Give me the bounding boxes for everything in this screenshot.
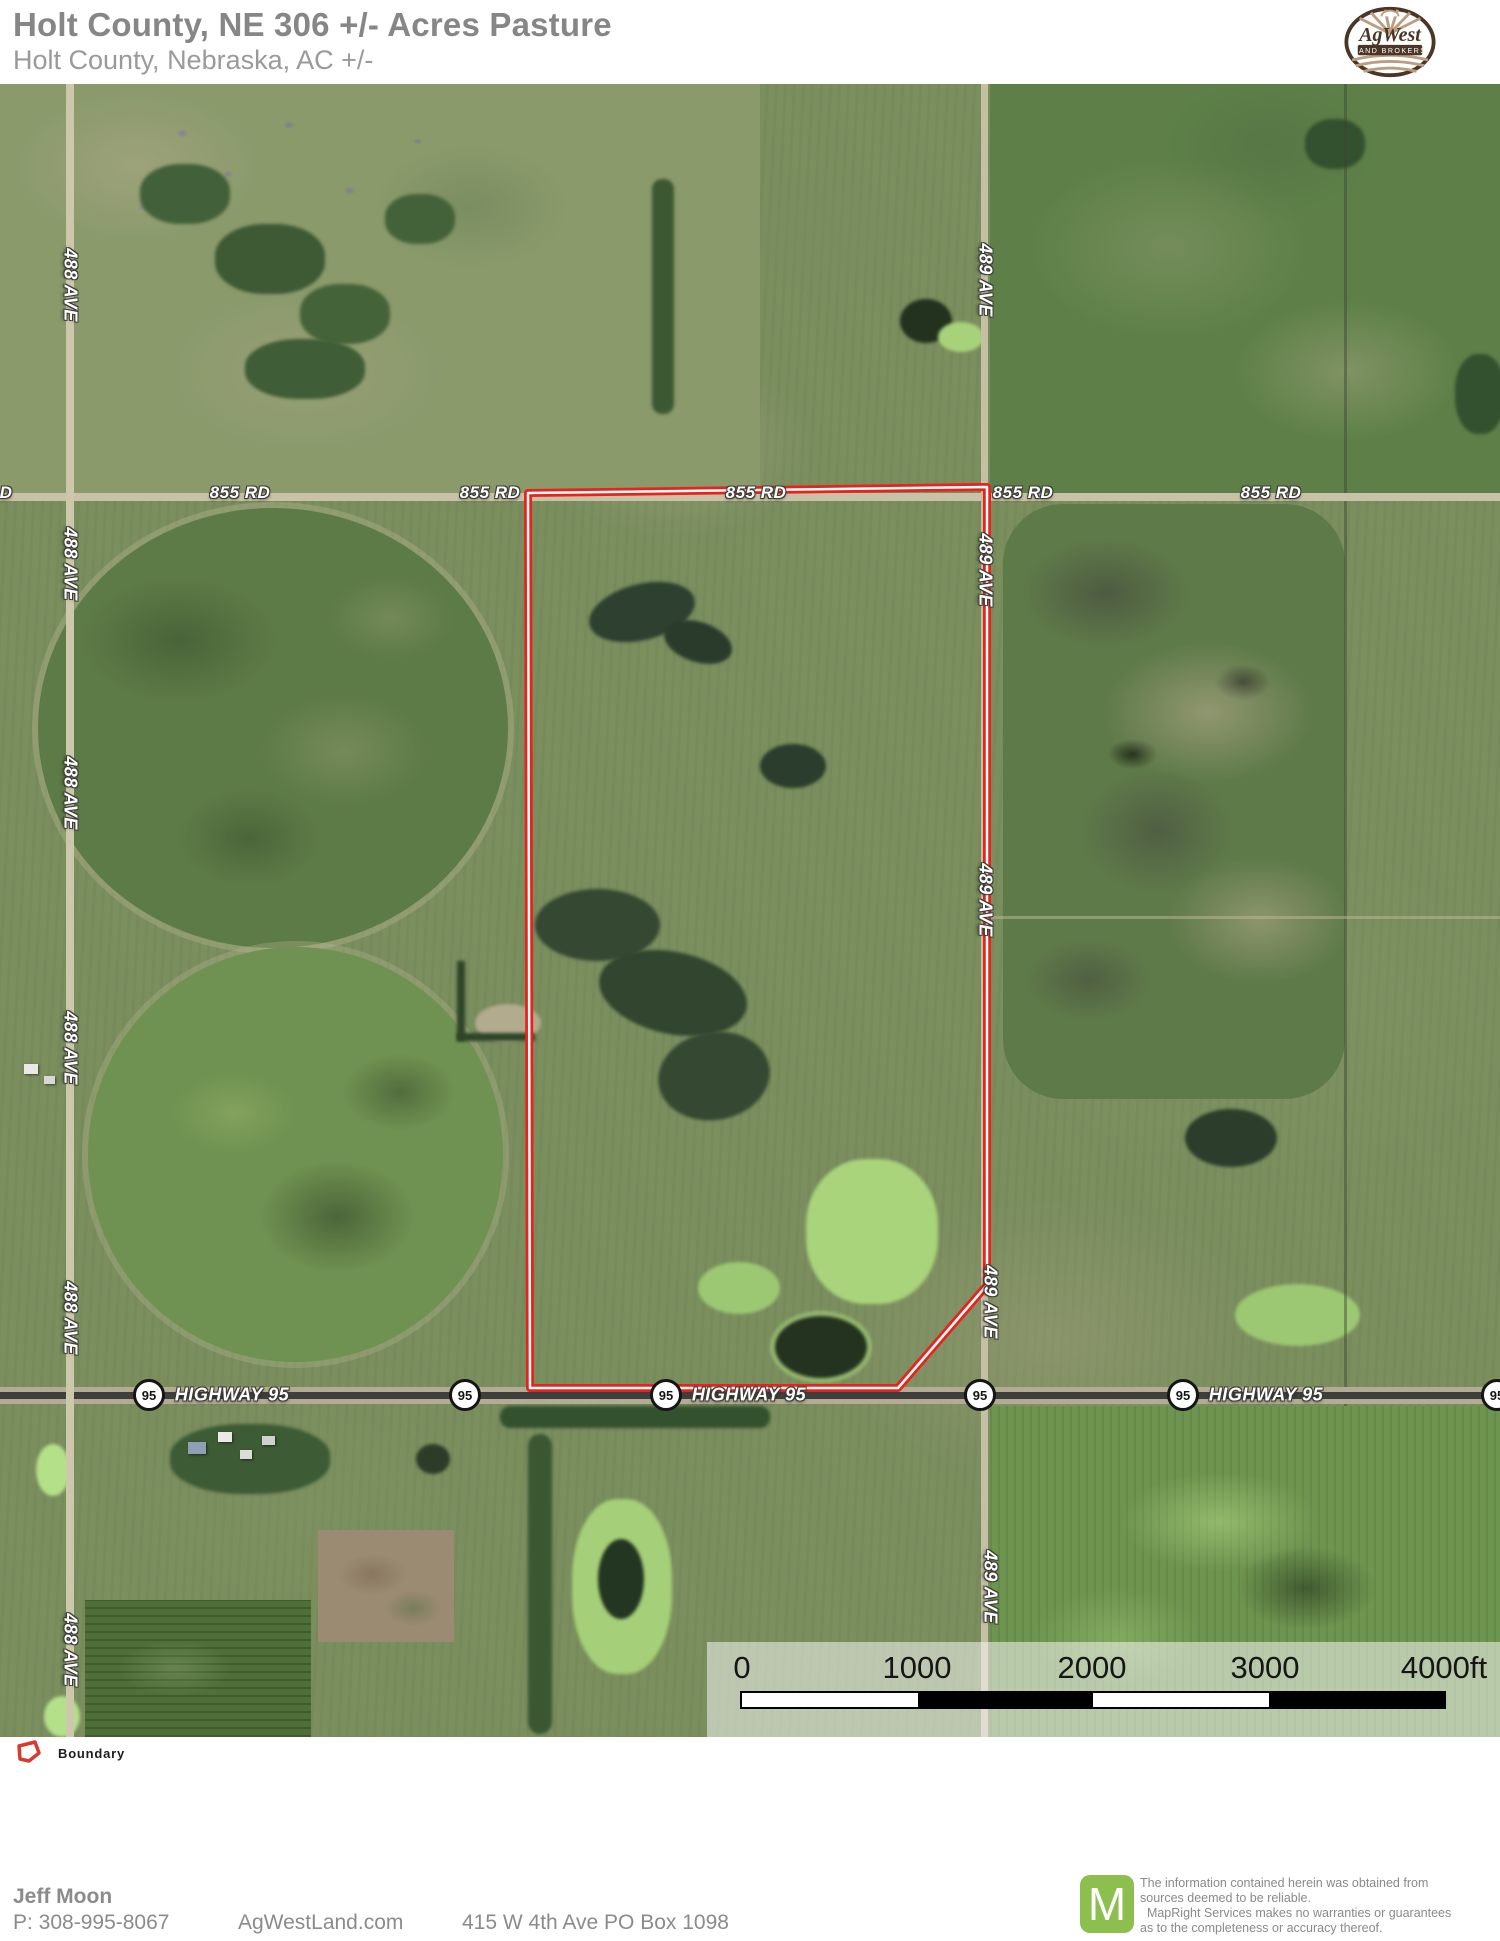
road-label-488ave: 488 AVE (60, 1011, 81, 1085)
road-label-855rd: 855 RD (726, 483, 787, 503)
road-label-highway95: HIGHWAY 95 (175, 1385, 289, 1406)
aerial-map: D 855 RD 855 RD 855 RD 855 RD 855 RD 488… (0, 84, 1500, 1737)
scale-segment (918, 1693, 1094, 1707)
road-label-489ave: 489 AVE (975, 863, 996, 937)
agwest-logo-tagline: LAND BROKERS (1354, 47, 1427, 55)
scale-bar-segments (740, 1691, 1446, 1709)
road-label-highway95: HIGHWAY 95 (1209, 1385, 1323, 1406)
scale-tick-1000: 1000 (883, 1650, 952, 1686)
scale-bar: 0 1000 2000 3000 4000ft (707, 1642, 1500, 1737)
highway-95-shield: 95 (133, 1379, 165, 1411)
scale-tick-2000: 2000 (1058, 1650, 1127, 1686)
listing-map-page: Holt County, NE 306 +/- Acres Pasture Ho… (0, 0, 1500, 1941)
disclaimer-line: MapRight Services makes no warranties or… (1140, 1906, 1500, 1921)
scale-tick-0: 0 (733, 1650, 750, 1686)
road-label-489ave: 489 AVE (980, 1265, 1001, 1339)
highway-95-shield: 95 (1167, 1379, 1199, 1411)
disclaimer-line: The information contained herein was obt… (1140, 1876, 1500, 1891)
mapright-logo: M (1080, 1875, 1134, 1933)
disclaimer-text: The information contained herein was obt… (1140, 1876, 1500, 1936)
scale-segment (1269, 1693, 1445, 1707)
road-label-855rd: 855 RD (460, 483, 521, 503)
scale-segment (1093, 1693, 1269, 1707)
agwest-logo-text: AgWest (1357, 24, 1422, 46)
road-label-488ave: 488 AVE (60, 527, 81, 601)
road-label-489ave: 489 AVE (975, 243, 996, 317)
page-subtitle: Holt County, Nebraska, AC +/- (13, 45, 373, 76)
disclaimer-line: as to the completeness or accuracy there… (1140, 1921, 1500, 1936)
road-label-855rd: 855 RD (210, 483, 271, 503)
road-label-855rd: 855 RD (993, 483, 1054, 503)
agent-name: Jeff Moon (13, 1885, 112, 1909)
boundary-legend-label: Boundary (58, 1746, 125, 1761)
road-label-488ave: 488 AVE (60, 1613, 81, 1687)
page-title: Holt County, NE 306 +/- Acres Pasture (13, 6, 612, 44)
road-label-489ave: 489 AVE (980, 1550, 1001, 1624)
boundary-legend-icon (14, 1739, 42, 1765)
road-label-855rd-partial: D (0, 483, 12, 503)
disclaimer-line: sources deemed to be reliable. (1140, 1891, 1500, 1906)
highway-95-shield: 95 (964, 1379, 996, 1411)
agent-phone: P: 308-995-8067 (13, 1911, 169, 1935)
scale-tick-4000ft: 4000ft (1401, 1650, 1487, 1686)
road-label-489ave: 489 AVE (975, 533, 996, 607)
scale-tick-3000: 3000 (1231, 1650, 1300, 1686)
agent-website-link[interactable]: AgWestLand.com (238, 1911, 403, 1935)
road-label-488ave: 488 AVE (60, 1281, 81, 1355)
road-label-855rd: 855 RD (1241, 483, 1302, 503)
agwest-logo: AgWest LAND BROKERS (1342, 5, 1438, 79)
road-label-488ave: 488 AVE (60, 248, 81, 322)
highway-95-shield: 95 (449, 1379, 481, 1411)
property-boundary (0, 84, 1500, 1737)
highway-95-shield: 95 (650, 1379, 682, 1411)
scale-segment (742, 1693, 918, 1707)
road-label-highway95: HIGHWAY 95 (692, 1385, 806, 1406)
road-label-488ave: 488 AVE (60, 756, 81, 830)
agent-address: 415 W 4th Ave PO Box 1098 (462, 1911, 729, 1935)
